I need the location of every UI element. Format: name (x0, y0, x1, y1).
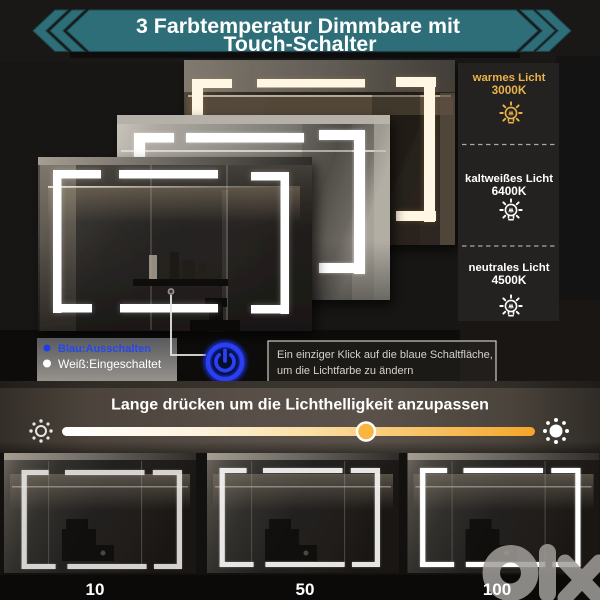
svg-text:Weiß:Eingeschaltet: Weiß:Eingeschaltet (58, 357, 162, 371)
svg-text:10: 10 (86, 580, 105, 599)
svg-text:Touch-Schalter: Touch-Schalter (224, 31, 378, 56)
svg-text:3000K: 3000K (492, 83, 527, 97)
svg-text:50: 50 (296, 580, 315, 599)
svg-text:100: 100 (483, 580, 511, 599)
svg-text:um die Lichtfarbe zu ändern: um die Lichtfarbe zu ändern (277, 365, 413, 377)
svg-text:Blau:Ausschalten: Blau:Ausschalten (58, 343, 151, 355)
svg-text:Lange drücken um die Lichthell: Lange drücken um die Lichthelligkeit anz… (111, 397, 489, 414)
svg-text:Ein einziger Klick auf die bla: Ein einziger Klick auf die blaue Schaltf… (277, 349, 493, 361)
svg-text:6400K: 6400K (492, 184, 527, 198)
svg-text:4500K: 4500K (492, 273, 527, 287)
